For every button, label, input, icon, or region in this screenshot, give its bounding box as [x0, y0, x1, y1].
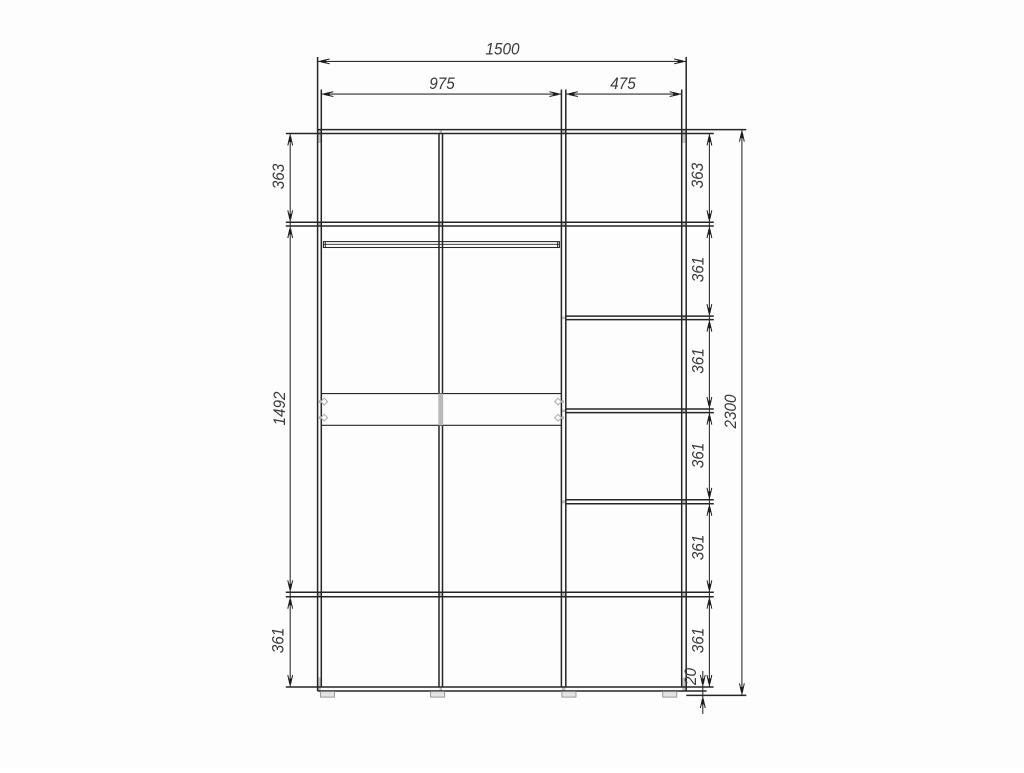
svg-text:1492: 1492 — [270, 391, 289, 425]
svg-text:1500: 1500 — [485, 40, 519, 59]
svg-text:361: 361 — [689, 348, 708, 374]
svg-text:363: 363 — [688, 163, 707, 189]
svg-text:2300: 2300 — [721, 394, 740, 429]
svg-text:361: 361 — [269, 628, 288, 654]
svg-text:361: 361 — [689, 443, 708, 469]
svg-text:20: 20 — [681, 668, 700, 686]
svg-text:361: 361 — [689, 257, 708, 283]
svg-text:975: 975 — [429, 74, 455, 93]
svg-text:475: 475 — [610, 74, 636, 93]
svg-text:361: 361 — [689, 535, 708, 561]
svg-text:361: 361 — [689, 628, 708, 654]
svg-text:363: 363 — [269, 164, 288, 190]
